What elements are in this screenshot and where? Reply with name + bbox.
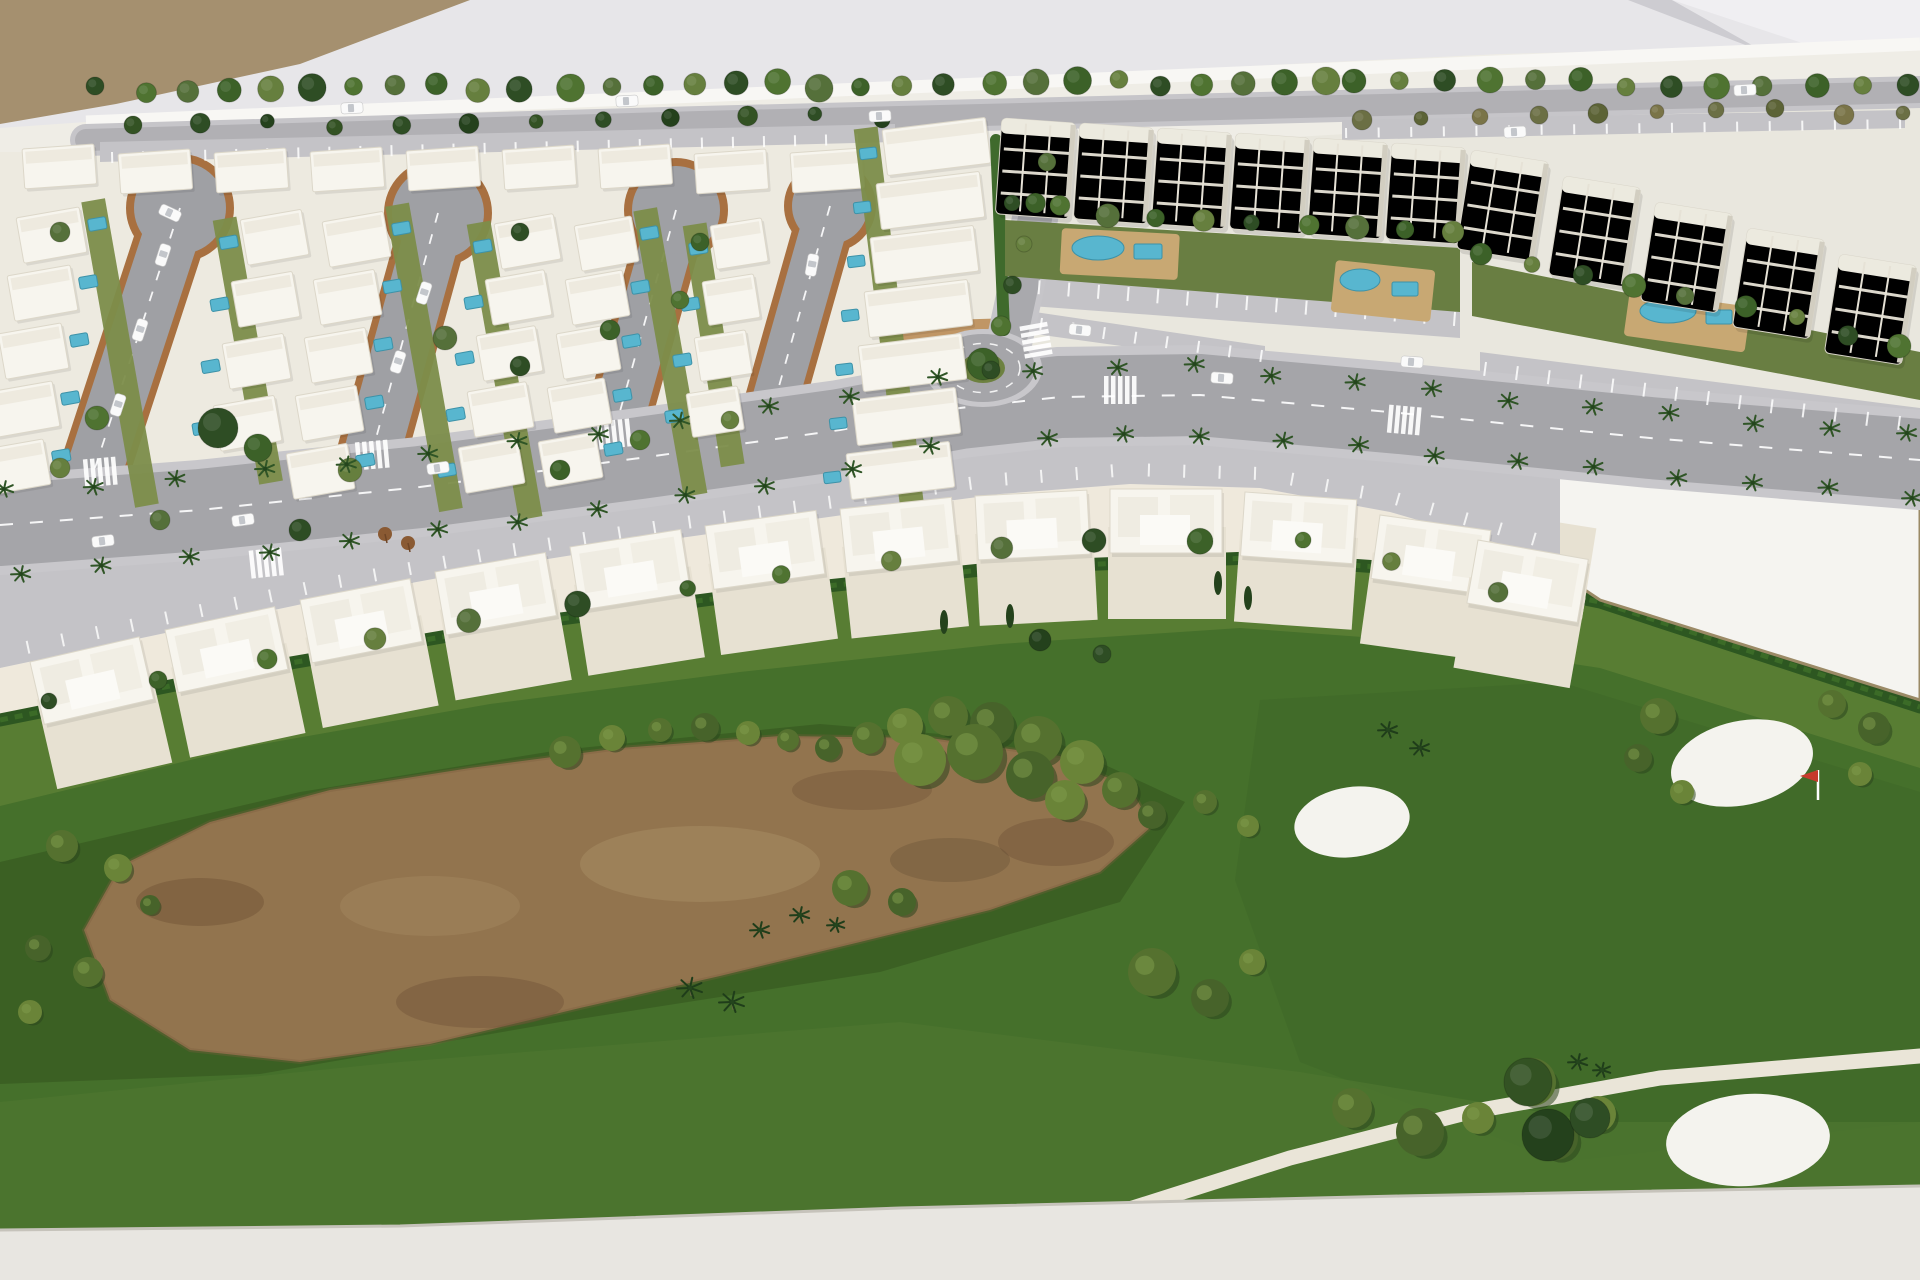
bush-highlight xyxy=(51,835,64,848)
villa-pool xyxy=(823,471,841,484)
palm-crown xyxy=(99,563,103,567)
palm-crown xyxy=(345,462,349,466)
tree-highlight xyxy=(1591,106,1600,115)
parking-stall-line xyxy=(1306,301,1307,315)
tree-highlight xyxy=(971,352,985,366)
bush-highlight xyxy=(1013,759,1032,778)
villa-pool xyxy=(219,235,239,250)
palm-crown xyxy=(92,485,96,489)
bush-highlight xyxy=(1628,748,1639,759)
palm-crown xyxy=(678,419,682,423)
villa-pool xyxy=(201,359,221,374)
tree-highlight xyxy=(461,116,470,125)
tree-highlight xyxy=(53,225,62,234)
tree-highlight xyxy=(1707,77,1719,89)
tree-highlight xyxy=(262,116,268,122)
villa xyxy=(598,144,675,192)
villa-pool xyxy=(672,353,692,368)
bush-highlight xyxy=(780,733,789,742)
bush-icon xyxy=(1191,979,1229,1017)
bush-icon xyxy=(1237,815,1259,837)
palm-crown xyxy=(798,913,802,917)
bush-icon xyxy=(25,935,51,961)
townhouse-facet xyxy=(1140,515,1190,545)
tree-highlight xyxy=(605,80,613,88)
apartment-block xyxy=(1732,228,1828,343)
tree-highlight xyxy=(727,74,738,85)
palm-crown xyxy=(683,493,687,497)
tree-highlight xyxy=(1026,72,1038,84)
villa-pool xyxy=(446,407,466,422)
tree-highlight xyxy=(153,513,162,522)
bush-highlight xyxy=(1197,985,1212,1000)
palm-crown xyxy=(850,467,854,471)
bush-highlight xyxy=(1403,1116,1422,1135)
tree-highlight xyxy=(1040,155,1048,163)
tree-highlight xyxy=(1099,207,1110,218)
tree-highlight xyxy=(1474,111,1481,118)
bush-highlight xyxy=(1338,1094,1354,1110)
parking-stall-line xyxy=(1246,296,1247,310)
tree-highlight xyxy=(1663,78,1673,88)
villa xyxy=(310,147,387,195)
tree-highlight xyxy=(884,553,893,562)
car xyxy=(869,110,892,122)
palm-crown xyxy=(763,484,767,488)
tree-highlight xyxy=(53,461,62,470)
palm-crown xyxy=(1905,431,1909,435)
parking-stall-line xyxy=(1276,298,1277,312)
bush-icon xyxy=(894,734,946,786)
villa xyxy=(790,148,867,196)
tree-highlight xyxy=(513,359,522,368)
villa xyxy=(538,432,606,491)
bush-highlight xyxy=(1021,724,1040,743)
villa xyxy=(214,148,291,196)
tree-highlight xyxy=(1190,531,1202,543)
tree-highlight xyxy=(387,78,396,87)
palm-crown xyxy=(936,375,940,379)
bush-highlight xyxy=(740,725,750,735)
palm-crown xyxy=(2,487,6,491)
tree-highlight xyxy=(894,78,903,87)
car-glass xyxy=(1218,374,1225,382)
tree-highlight xyxy=(509,79,521,91)
villa xyxy=(118,149,195,197)
bush-icon xyxy=(1670,780,1694,804)
bush-highlight xyxy=(554,741,567,754)
bush-highlight xyxy=(108,858,119,869)
parking-stall-line xyxy=(1006,473,1007,486)
cypress-tree-icon xyxy=(940,610,948,634)
villa-pool xyxy=(630,280,650,295)
palm-crown xyxy=(1910,496,1914,500)
villa-pool xyxy=(603,442,623,457)
tree-highlight xyxy=(1275,73,1287,85)
tree-highlight xyxy=(1416,113,1422,119)
villa-pool xyxy=(455,351,475,366)
bush-highlight xyxy=(857,727,870,740)
palm-crown xyxy=(1751,481,1755,485)
tree-highlight xyxy=(682,582,689,589)
villa xyxy=(574,216,642,275)
palm-crown xyxy=(268,550,272,554)
bush-icon xyxy=(1462,1102,1494,1134)
tree-highlight xyxy=(1398,223,1406,231)
tree-highlight xyxy=(203,413,221,431)
tree-highlight xyxy=(139,85,148,94)
car-glass xyxy=(99,537,106,546)
tree-highlight xyxy=(1085,531,1096,542)
bush-icon xyxy=(599,725,625,751)
tree-highlight xyxy=(1028,196,1037,205)
bush-icon xyxy=(104,854,132,882)
parking-stall-line xyxy=(1128,287,1129,301)
bush-icon xyxy=(852,722,884,754)
palm-crown xyxy=(516,520,520,524)
crosswalk-bar xyxy=(1111,376,1116,404)
bush-icon xyxy=(777,729,799,751)
car xyxy=(616,95,639,107)
tree-highlight xyxy=(1393,74,1401,82)
car-glass xyxy=(433,464,440,473)
palm-crown xyxy=(1116,366,1120,370)
palm-crown xyxy=(188,555,192,559)
tree-highlight xyxy=(261,79,273,91)
tree-highlight xyxy=(1768,102,1776,110)
tree-highlight xyxy=(1195,212,1205,222)
palm-crown xyxy=(1433,454,1437,458)
tree-highlight xyxy=(292,522,302,532)
villa-pool xyxy=(835,363,853,376)
car-glass xyxy=(1076,326,1083,335)
tree-highlight xyxy=(1436,72,1446,82)
bush-icon xyxy=(1102,772,1138,808)
palm-crown xyxy=(1122,432,1126,436)
car-glass xyxy=(1511,128,1517,136)
tree-highlight xyxy=(513,225,521,233)
villa xyxy=(22,144,99,192)
tree-highlight xyxy=(774,568,782,576)
villa-pool xyxy=(473,239,493,254)
lap-pool xyxy=(1392,282,1418,296)
tree-highlight xyxy=(436,329,447,340)
bush-highlight xyxy=(977,709,995,727)
tree-highlight xyxy=(687,76,697,86)
car xyxy=(1734,84,1757,96)
bush-highlight xyxy=(1107,778,1121,792)
sand-blotch xyxy=(340,876,520,936)
tree-highlight xyxy=(1032,632,1042,642)
tree-highlight xyxy=(1575,1103,1593,1121)
palm-crown xyxy=(688,986,692,990)
tree-highlight xyxy=(260,651,269,660)
bush-highlight xyxy=(1135,956,1154,975)
bush-highlight xyxy=(1142,805,1153,816)
bush-icon xyxy=(1239,949,1265,975)
tree-highlight xyxy=(395,119,403,127)
tree-highlight xyxy=(1841,328,1850,337)
bush-highlight xyxy=(78,962,90,974)
palm-crown xyxy=(1198,434,1202,438)
tree-highlight xyxy=(1052,198,1061,207)
car xyxy=(1068,323,1091,336)
tree-highlight xyxy=(673,293,681,301)
townhouse-cluster xyxy=(838,497,969,639)
palm-crown xyxy=(758,928,762,932)
tree-highlight xyxy=(984,363,992,371)
bush-highlight xyxy=(1822,694,1833,705)
tree-highlight xyxy=(1316,71,1329,84)
bush-icon xyxy=(947,724,1003,780)
villa xyxy=(686,386,747,441)
villa xyxy=(502,145,579,193)
tree-highlight xyxy=(935,76,945,86)
tree-highlight xyxy=(664,111,672,119)
car-glass xyxy=(876,112,882,120)
bush-highlight xyxy=(837,876,851,890)
townhouse-cluster xyxy=(973,490,1098,626)
palm-crown xyxy=(1506,399,1510,403)
tree-highlight xyxy=(740,108,749,117)
tree-highlight xyxy=(1619,80,1627,88)
villa xyxy=(547,378,615,437)
crosswalk-bar xyxy=(1104,376,1109,404)
bush-icon xyxy=(1624,744,1652,772)
car-glass xyxy=(1741,86,1747,94)
bush-icon xyxy=(1060,740,1104,784)
tree-highlight xyxy=(994,540,1004,550)
tree-highlight xyxy=(88,409,99,420)
cypress-tree-icon xyxy=(1214,571,1222,595)
tree-highlight xyxy=(1678,289,1686,297)
tree-highlight xyxy=(180,83,190,93)
villa-pool xyxy=(841,309,859,322)
villa-pool xyxy=(847,255,865,268)
car xyxy=(91,534,114,548)
palm-crown xyxy=(848,394,852,398)
tree-highlight xyxy=(43,695,50,702)
townhouse-cluster xyxy=(1108,489,1226,619)
palm-crown xyxy=(1193,362,1197,366)
bush-icon xyxy=(73,957,103,987)
villa-pool xyxy=(639,226,659,241)
bush-highlight xyxy=(1051,786,1067,802)
bush-icon xyxy=(1332,1088,1372,1128)
tree-highlight xyxy=(367,630,377,640)
bush-highlight xyxy=(1674,784,1684,794)
bush-icon xyxy=(736,721,760,745)
palm-crown xyxy=(515,439,519,443)
tree-highlight xyxy=(1245,217,1252,224)
tree-highlight xyxy=(1348,218,1359,229)
bush-icon xyxy=(1818,690,1846,718)
apartment-block xyxy=(1456,150,1552,265)
car-glass xyxy=(348,104,354,112)
villa-pool xyxy=(364,395,384,410)
tree-highlight xyxy=(1572,70,1583,81)
bush-highlight xyxy=(1240,819,1249,828)
tree-highlight xyxy=(646,78,655,87)
palm-crown xyxy=(173,477,177,481)
scale-model-scene xyxy=(0,0,1920,1280)
bush-icon xyxy=(648,718,672,742)
villa-pool xyxy=(859,147,877,160)
palm-crown xyxy=(1592,465,1596,469)
tree-highlight xyxy=(1898,108,1904,114)
villa xyxy=(710,218,771,273)
tree-highlight xyxy=(560,77,573,90)
bush-highlight xyxy=(934,702,950,718)
palm-crown xyxy=(19,572,23,576)
bush-icon xyxy=(1858,712,1890,744)
bush-highlight xyxy=(1467,1107,1480,1120)
tree-highlight xyxy=(1837,107,1846,116)
car xyxy=(1504,126,1527,138)
tree-highlight xyxy=(1491,585,1500,594)
car xyxy=(341,102,364,114)
tree-highlight xyxy=(126,118,134,126)
bush-icon xyxy=(1193,790,1217,814)
tree-highlight xyxy=(1576,268,1585,277)
sand-blotch xyxy=(890,838,1010,882)
tree-highlight xyxy=(1234,75,1245,86)
palm-crown xyxy=(597,432,601,436)
car-glass xyxy=(238,516,245,525)
tree-highlight xyxy=(810,109,816,115)
villa xyxy=(702,274,763,329)
bush-highlight xyxy=(1852,766,1862,776)
palm-crown xyxy=(1591,405,1595,409)
palm-crown xyxy=(596,507,600,511)
parking-stall-line xyxy=(1039,280,1040,294)
palm-crown xyxy=(928,444,932,448)
tree-highlight xyxy=(1526,259,1533,266)
parking-stall-line xyxy=(1454,312,1455,326)
townhouse-facet xyxy=(1006,518,1058,551)
villa-pool xyxy=(464,295,484,310)
bush-highlight xyxy=(143,898,151,906)
tree-highlight xyxy=(553,463,562,472)
bush-icon xyxy=(549,736,581,768)
cypress-tree-icon xyxy=(1244,586,1252,610)
bush-icon xyxy=(18,1000,42,1024)
crosswalk-bar xyxy=(1132,376,1137,404)
crosswalk-bar xyxy=(1125,376,1130,404)
bush-highlight xyxy=(29,939,39,949)
bush-icon xyxy=(1640,698,1676,734)
tree-highlight xyxy=(1006,278,1014,286)
tree-highlight xyxy=(347,80,355,88)
palm-crown xyxy=(348,539,352,543)
tree-highlight xyxy=(1067,70,1080,83)
lagoon-pool xyxy=(1340,269,1380,291)
villa-pool xyxy=(853,201,871,214)
bush-highlight xyxy=(892,892,903,903)
villa-pool xyxy=(87,217,107,232)
villa xyxy=(694,330,755,385)
palm-crown xyxy=(1600,1068,1604,1072)
palm-crown xyxy=(1826,485,1830,489)
bush-highlight xyxy=(1645,704,1659,718)
townhouse-cluster xyxy=(433,552,572,701)
parking-stall-line xyxy=(1076,467,1077,480)
palm-crown xyxy=(1828,426,1832,430)
tree-highlight xyxy=(768,72,780,84)
lagoon-pool xyxy=(1072,236,1124,260)
car-glass xyxy=(1408,358,1415,366)
villa xyxy=(406,146,483,194)
tree-highlight xyxy=(151,673,159,681)
bush-icon xyxy=(815,735,841,761)
parking-stall-line xyxy=(1111,464,1112,477)
parking-stall-line xyxy=(1187,292,1188,306)
tree-highlight xyxy=(460,612,471,623)
tree-highlight xyxy=(1473,246,1483,256)
tree-highlight xyxy=(1302,218,1311,227)
tree-highlight xyxy=(1385,555,1393,563)
lap-pool xyxy=(1134,244,1162,259)
tree-highlight xyxy=(1528,72,1537,81)
parking-stall-line xyxy=(1041,470,1042,483)
parking-stall-line xyxy=(1157,289,1158,303)
tree-highlight xyxy=(88,79,96,87)
bush-highlight xyxy=(652,722,662,732)
palm-crown xyxy=(1357,443,1361,447)
tree-highlight xyxy=(809,78,822,91)
bush-highlight xyxy=(22,1004,32,1014)
townhouse-cluster xyxy=(1453,540,1592,689)
palm-crown xyxy=(1516,459,1520,463)
townhouse-cluster xyxy=(703,510,838,655)
tree-highlight xyxy=(1890,337,1901,348)
palm-crown xyxy=(1269,374,1273,378)
tree-highlight xyxy=(1791,311,1798,318)
tree-highlight xyxy=(603,323,612,332)
villa xyxy=(565,270,633,329)
tree-highlight xyxy=(1006,197,1013,204)
parking-stall-line xyxy=(1068,283,1069,297)
tree-highlight xyxy=(1345,72,1356,83)
photo-of-architectural-scale-model xyxy=(0,0,1920,1280)
tree-highlight xyxy=(1532,108,1540,116)
tree-highlight xyxy=(1738,298,1748,308)
palm-crown xyxy=(1354,380,1358,384)
bush-icon xyxy=(46,830,78,862)
villa-pool xyxy=(382,279,402,294)
palm-crown xyxy=(436,527,440,531)
bush-icon xyxy=(140,895,160,915)
tree-highlight xyxy=(1297,534,1304,541)
tree-highlight xyxy=(1112,73,1120,81)
tree-highlight xyxy=(193,116,202,125)
tree-highlight xyxy=(633,433,642,442)
tree-highlight xyxy=(1355,113,1364,122)
bush-icon xyxy=(1848,762,1872,786)
tree-highlight xyxy=(1625,277,1636,288)
tree-highlight xyxy=(469,82,480,93)
tree-highlight xyxy=(994,319,1003,328)
villa-pool xyxy=(78,275,98,290)
sand-blotch xyxy=(998,818,1114,866)
bush-highlight xyxy=(695,717,706,728)
bush-highlight xyxy=(1197,794,1207,804)
bush-highlight xyxy=(603,729,613,739)
palm-crown xyxy=(1675,476,1679,480)
car xyxy=(1401,356,1424,369)
villa-pool xyxy=(829,417,847,430)
crosswalk-bar xyxy=(1118,376,1123,404)
